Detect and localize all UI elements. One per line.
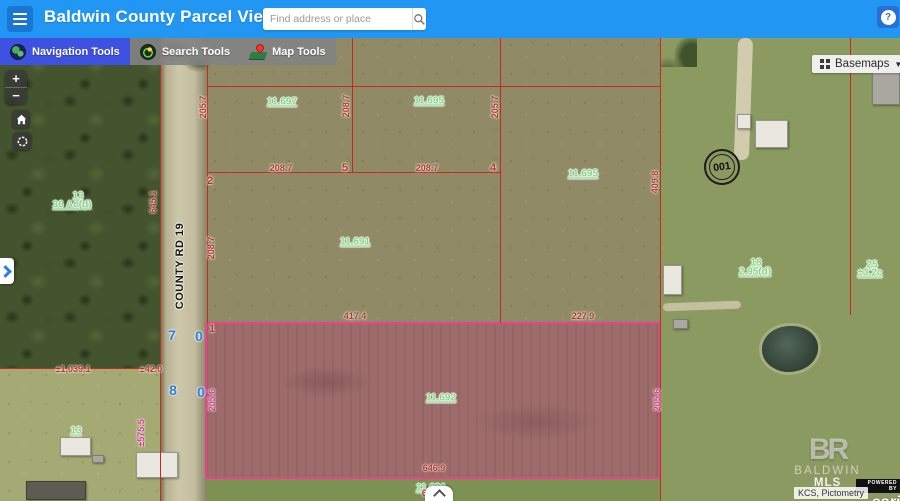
parcel-acreage-link[interactable]: 36 Ac(d) (52, 200, 91, 211)
building-imagery (673, 319, 688, 329)
chevron-right-icon (0, 265, 12, 278)
building-imagery (663, 265, 682, 295)
home-button[interactable] (12, 110, 30, 128)
parcel-viewer-app: 11.69711.69511.69511.69111.69211.6911336… (0, 0, 900, 501)
locate-icon (16, 135, 29, 148)
help-button[interactable]: ? (877, 6, 899, 28)
search-input[interactable] (263, 8, 412, 30)
map-attribution: KCS, Pictometry (794, 487, 868, 499)
building-imagery (755, 120, 788, 148)
search-button[interactable] (412, 8, 426, 30)
building-imagery (737, 114, 751, 129)
locate-button[interactable] (13, 132, 31, 150)
parcel-acreage-link[interactable]: 2.95(d) (739, 267, 771, 278)
map-pin-icon (250, 44, 266, 60)
help-icon: ? (881, 10, 896, 25)
zoom-controls: + − (5, 70, 27, 104)
building-imagery (136, 452, 178, 478)
section-corner-label: 001 (707, 152, 736, 181)
parcel-acreage-link[interactable]: 11.695 (414, 96, 444, 107)
zoom-in-button[interactable]: + (5, 70, 27, 87)
building-imagery (26, 481, 86, 500)
building-imagery (872, 71, 900, 105)
side-panel-toggle[interactable] (0, 258, 14, 284)
menu-button[interactable] (7, 6, 33, 32)
map-tools-label: Map Tools (272, 46, 326, 58)
basemaps-label: Basemaps (835, 58, 889, 70)
navigation-tools-button[interactable]: Navigation Tools (0, 38, 130, 65)
search-box (263, 8, 426, 30)
search-icon (413, 13, 426, 26)
zoom-out-button[interactable]: − (5, 87, 27, 104)
parcel-acreage-link[interactable]: 11.695 (568, 169, 598, 180)
search-tools-label: Search Tools (162, 46, 230, 58)
hamburger-icon (7, 13, 33, 26)
basemap-grid-icon (820, 59, 830, 69)
parcel-acreage-link[interactable]: 11.692 (426, 393, 456, 404)
app-header: Baldwin County Parcel Viewer ? (0, 0, 900, 38)
search-tools-button[interactable]: Search Tools (130, 38, 240, 65)
county-road-imagery (160, 38, 206, 501)
building-imagery (92, 455, 104, 463)
search-globe-icon (140, 44, 156, 60)
building-imagery (60, 437, 91, 456)
tools-toolbar: Navigation Tools Search Tools Map Tools (0, 38, 336, 65)
navigation-tools-label: Navigation Tools (32, 46, 120, 58)
parcel-acreage-link[interactable]: ±3.2c (858, 268, 883, 279)
bottom-panel-toggle[interactable] (425, 486, 453, 501)
map-tools-button[interactable]: Map Tools (240, 38, 336, 65)
parcel-acreage-link[interactable]: 13 (70, 426, 81, 437)
home-icon (16, 114, 27, 125)
parcel-acreage-link[interactable]: 11.697 (267, 97, 297, 108)
chevron-down-icon: ▼ (894, 60, 900, 69)
basemaps-button[interactable]: Basemaps ▼ (812, 55, 900, 73)
chevron-up-icon (433, 489, 446, 501)
globe-icon (10, 44, 26, 60)
parcel-acreage-link[interactable]: 11.691 (340, 237, 370, 248)
app-title: Baldwin County Parcel Viewer (44, 7, 293, 27)
